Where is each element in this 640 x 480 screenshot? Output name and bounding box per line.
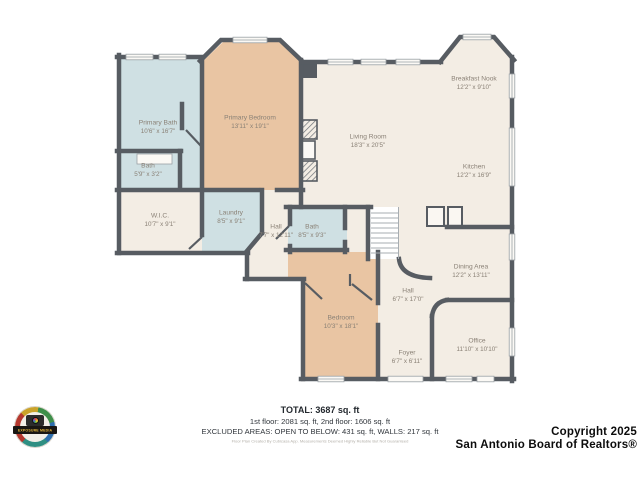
- logo-banner: EXPOSURE MEDIA: [13, 426, 57, 434]
- disclaimer-text: Floor Plan Created By Cubicasa App. Meas…: [176, 439, 464, 444]
- kitchen-island: [427, 207, 462, 226]
- room-label-hall-lower: Hall 6'7" x 17'0": [392, 287, 423, 303]
- room-label-hall-upper: Hall 7'7" x 12'11": [259, 223, 293, 239]
- room-label-kitchen: Kitchen 12'2" x 16'9": [457, 163, 492, 179]
- exposure-media-logo: EXPOSURE MEDIA: [14, 406, 56, 448]
- total-area-text: TOTAL: 3687 sq. ft: [0, 405, 640, 415]
- copyright-line1: Copyright 2025: [456, 426, 637, 439]
- room-label-bath2: Bath 8'5" x 9'3": [298, 223, 326, 239]
- room-label-office: Office 11'10" x 10'10": [456, 337, 497, 353]
- camera-icon: [26, 415, 44, 426]
- room-label-primary-bath: Primary Bath 10'6" x 16'7": [139, 119, 177, 135]
- room-label-primary-bedroom: Primary Bedroom 13'11" x 19'1": [224, 114, 276, 130]
- copyright-line2: San Antonio Board of Realtors®: [456, 439, 637, 452]
- floor-areas-text: 1st floor: 2081 sq. ft, 2nd floor: 1606 …: [0, 417, 640, 426]
- camera-lens-icon: [32, 417, 39, 424]
- room-label-living-room: Living Room 18'3" x 20'5": [350, 133, 387, 149]
- room-label-bedroom: Bedroom 10'3" x 18'1": [324, 314, 359, 330]
- room-label-laundry: Laundry 8'5" x 9'1": [217, 209, 245, 225]
- logo-text: EXPOSURE MEDIA: [18, 428, 52, 432]
- room-label-wic: W.I.C. 10'7" x 9'1": [144, 212, 175, 228]
- room-label-dining-area: Dining Area 12'2" x 13'11": [452, 263, 490, 279]
- room-label-breakfast-nook: Breakfast Nook 12'2" x 9'10": [451, 75, 496, 91]
- copyright-notice: Copyright 2025 San Antonio Board of Real…: [456, 426, 637, 451]
- room-label-foyer: Foyer 6'7" x 6'11": [392, 349, 423, 365]
- floor-plan-page: Primary Bath 10'6" x 16'7" Bath 5'9" x 3…: [0, 0, 640, 480]
- room-label-bath-small: Bath 5'9" x 3'2": [134, 162, 162, 178]
